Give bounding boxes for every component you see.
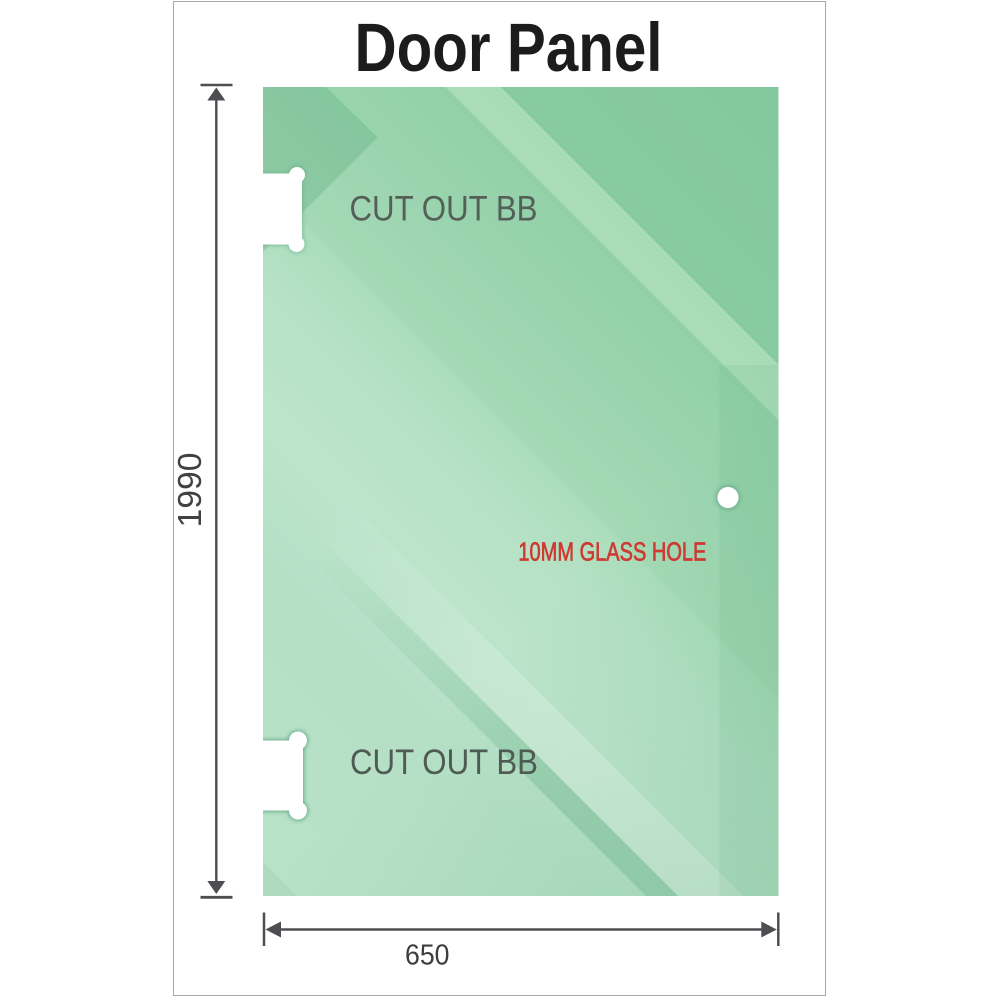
svg-text:CUT OUT BB: CUT OUT BB	[350, 743, 538, 782]
svg-text:1990: 1990	[171, 453, 208, 528]
svg-text:CUT OUT BB: CUT OUT BB	[350, 189, 538, 228]
svg-text:Door Panel: Door Panel	[355, 9, 663, 86]
svg-text:10MM GLASS HOLE: 10MM GLASS HOLE	[518, 536, 706, 566]
svg-text:650: 650	[405, 940, 450, 972]
